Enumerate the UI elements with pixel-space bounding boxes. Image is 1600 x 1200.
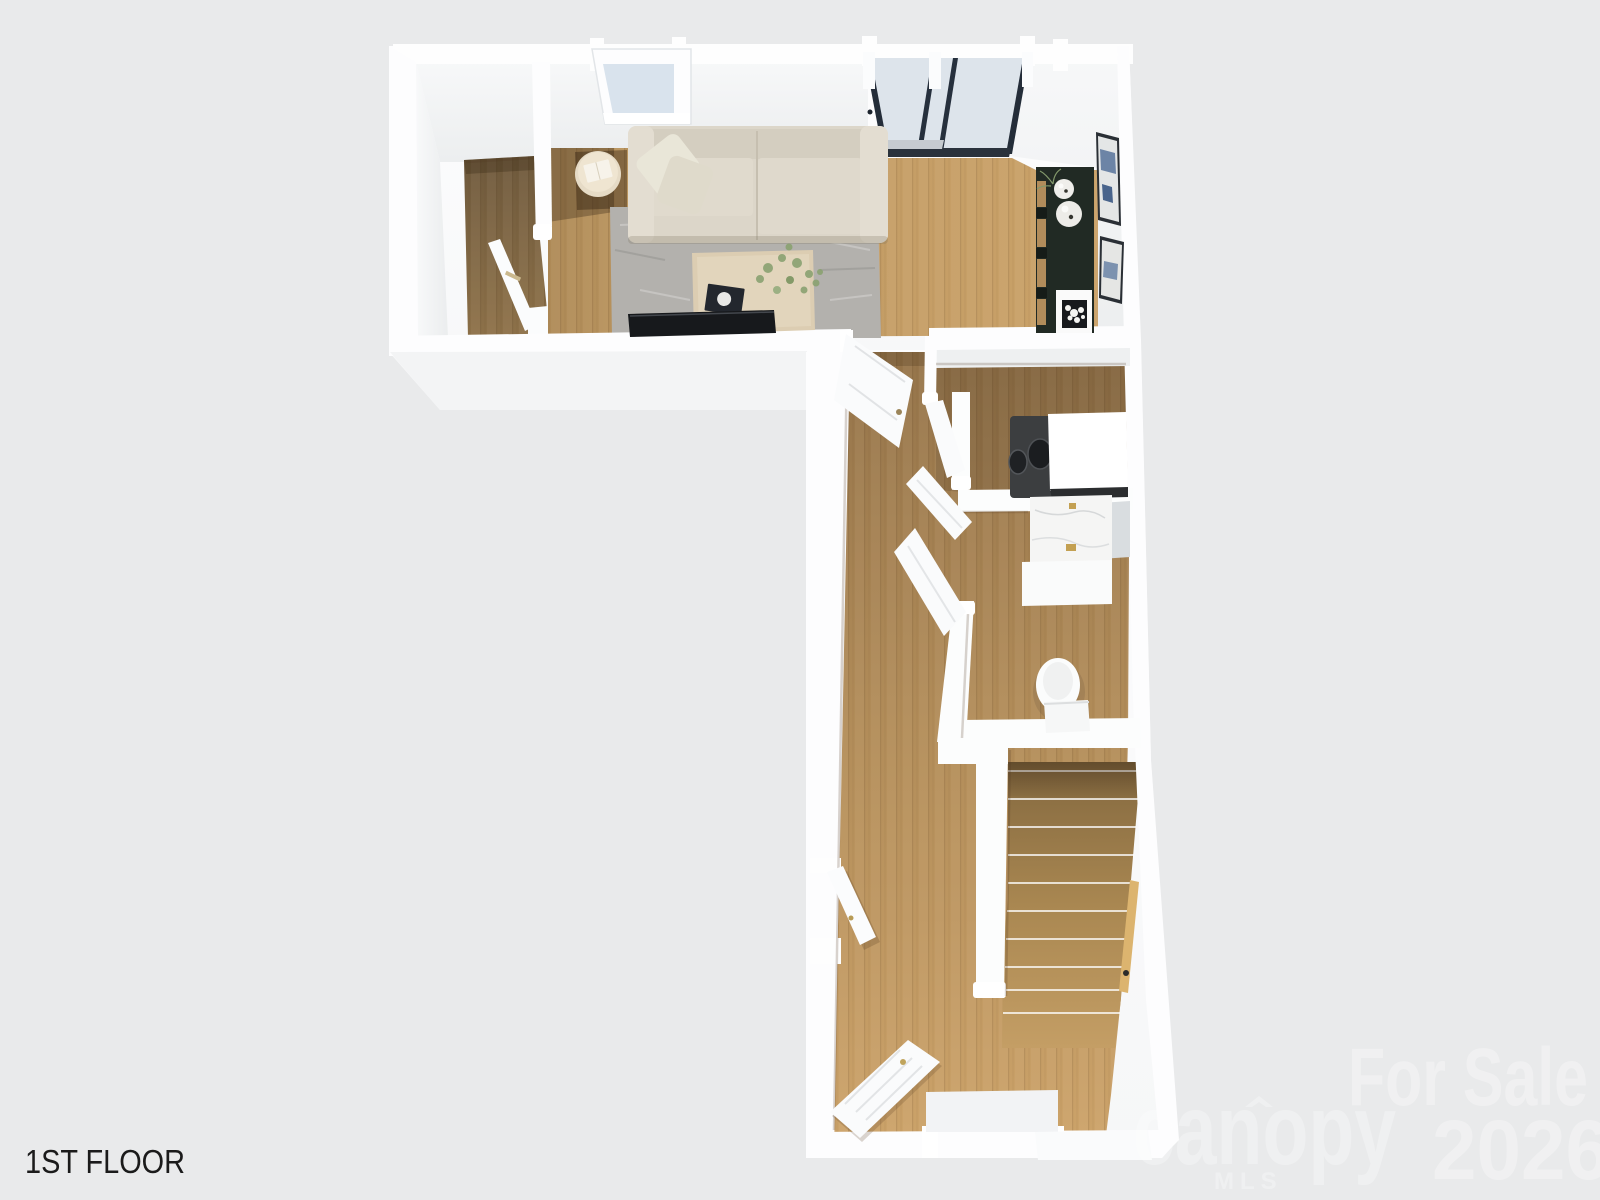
svg-text:MLS: MLS [1214,1168,1283,1195]
svg-text:2026: 2026 [1432,1103,1600,1197]
svg-text:1ST FLOOR: 1ST FLOOR [25,1143,185,1180]
